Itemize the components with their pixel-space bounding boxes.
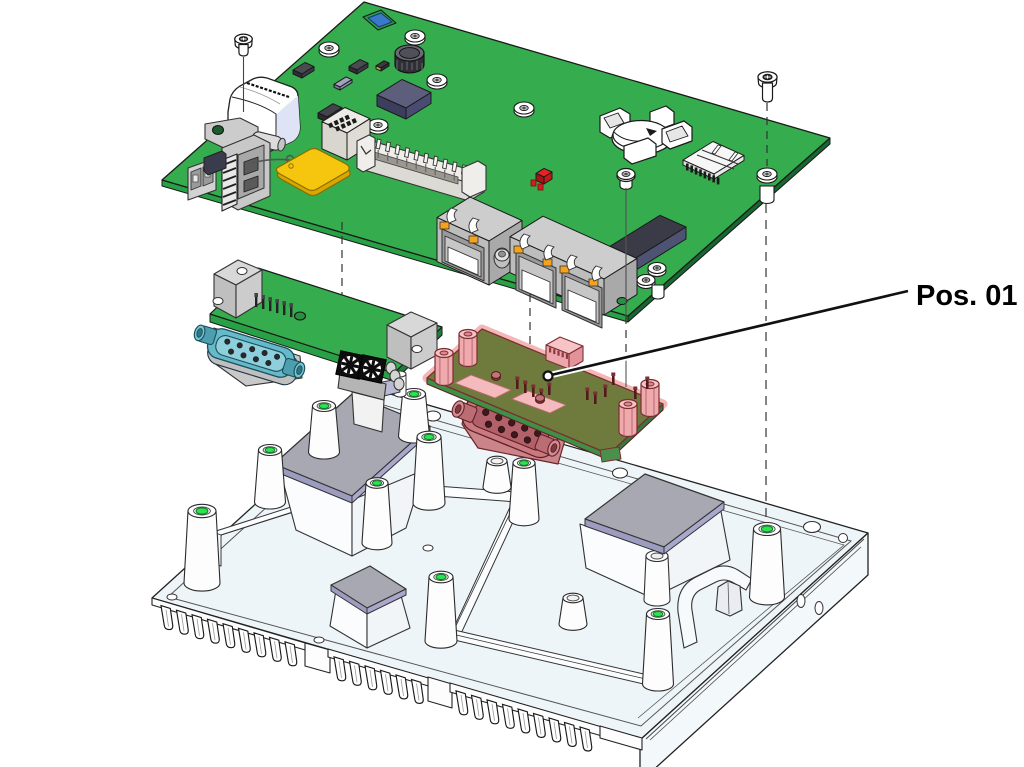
svg-text:Pos. 01: Pos. 01 — [916, 280, 1018, 312]
